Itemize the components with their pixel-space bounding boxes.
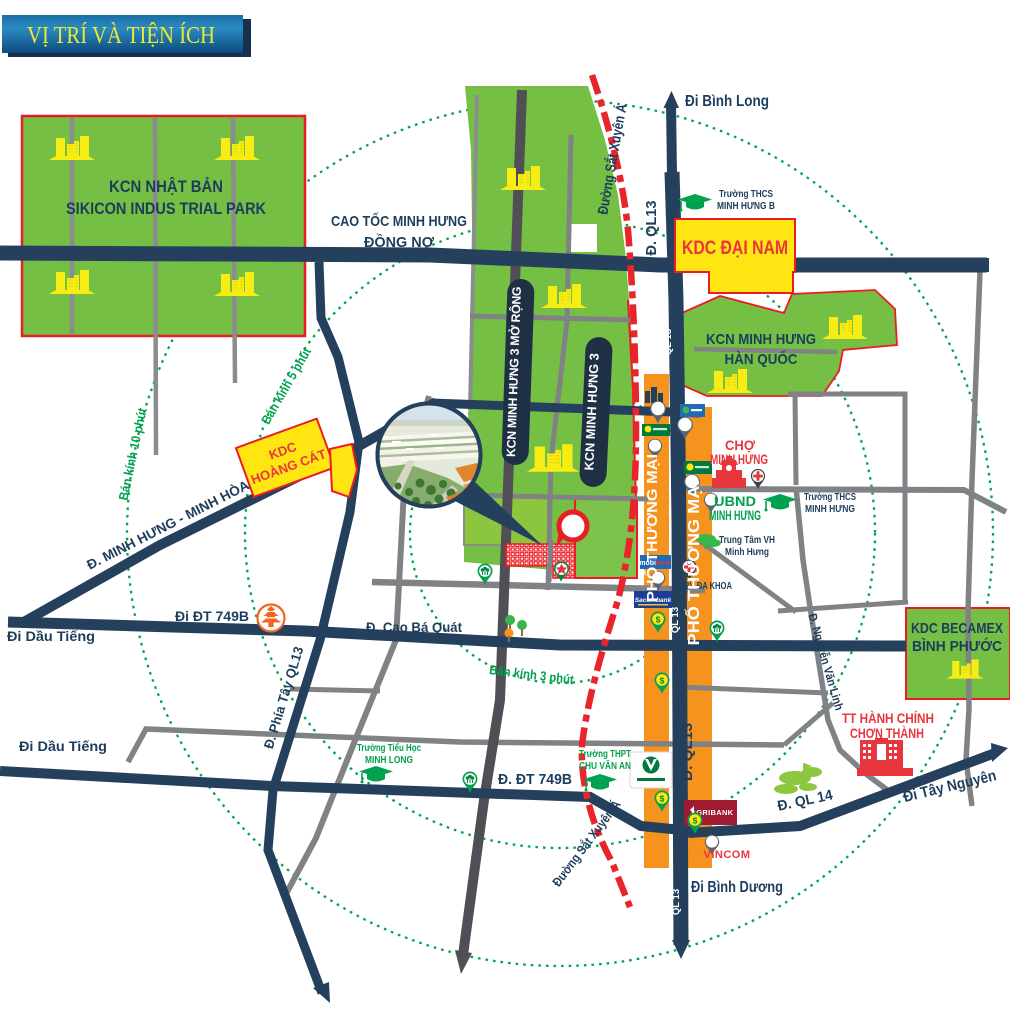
- svg-text:Trường Tiểu Học: Trường Tiểu Học: [357, 743, 421, 754]
- svg-text:QL 13: QL 13: [670, 607, 681, 633]
- svg-text:Đi Dầu Tiếng: Đi Dầu Tiếng: [7, 628, 95, 644]
- svg-text:Đ. ĐT 749B: Đ. ĐT 749B: [498, 772, 572, 788]
- svg-text:VỊ TRÍ VÀ TIỆN ÍCH: VỊ TRÍ VÀ TIỆN ÍCH: [27, 23, 215, 49]
- svg-text:Trường THCS: Trường THCS: [719, 189, 773, 200]
- svg-text:Minh Hưng: Minh Hưng: [725, 547, 769, 558]
- svg-text:MINH HƯNG: MINH HƯNG: [805, 504, 855, 515]
- svg-text:Đ. QL13: Đ. QL13: [679, 723, 696, 781]
- svg-text:Trường THPT: Trường THPT: [579, 749, 631, 760]
- svg-text:PHỐ THƯƠNG MẠI: PHỐ THƯƠNG MẠI: [685, 481, 703, 646]
- svg-text:Đ. Cao Bá Quát: Đ. Cao Bá Quát: [366, 619, 462, 635]
- svg-text:Trường THCS: Trường THCS: [804, 492, 856, 503]
- svg-text:MINH LONG: MINH LONG: [365, 755, 413, 766]
- svg-text:TT HÀNH CHÍNH: TT HÀNH CHÍNH: [842, 711, 934, 726]
- svg-text:CHỢ: CHỢ: [725, 438, 755, 453]
- svg-text:BÌNH PHƯỚC: BÌNH PHƯỚC: [912, 637, 1002, 655]
- svg-text:Đ. QL13: Đ. QL13: [643, 201, 660, 256]
- svg-text:CAO TỐC MINH HƯNG: CAO TỐC MINH HƯNG: [331, 212, 467, 230]
- svg-text:SIKICON INDUS TRIAL PARK: SIKICON INDUS TRIAL PARK: [66, 199, 267, 218]
- svg-text:PHỐ THƯƠNG MẠI: PHỐ THƯƠNG MẠI: [643, 454, 661, 602]
- svg-text:KCN NHẬT BẢN: KCN NHẬT BẢN: [109, 177, 223, 196]
- svg-text:QL 13: QL 13: [671, 889, 682, 915]
- svg-text:KDC BECAMEX: KDC BECAMEX: [911, 620, 1003, 637]
- svg-text:Đi ĐT 749B: Đi ĐT 749B: [175, 608, 249, 624]
- svg-text:ĐỒNG NƠ: ĐỒNG NƠ: [364, 233, 434, 251]
- svg-text:MINH HƯNG: MINH HƯNG: [710, 452, 768, 467]
- svg-text:Đi Bình Dương: Đi Bình Dương: [691, 879, 783, 896]
- svg-text:CHU VĂN AN: CHU VĂN AN: [579, 761, 631, 772]
- svg-text:KCN MINH HƯNG: KCN MINH HƯNG: [706, 331, 816, 348]
- svg-text:Đi Bình Long: Đi Bình Long: [685, 93, 769, 110]
- svg-text:Trung Tâm VH: Trung Tâm VH: [719, 535, 775, 546]
- svg-text:VINCOM: VINCOM: [704, 849, 751, 861]
- svg-text:CHƠN THÀNH: CHƠN THÀNH: [850, 726, 924, 741]
- svg-text:MINH HƯNG: MINH HƯNG: [709, 508, 761, 523]
- svg-text:UBND: UBND: [714, 494, 756, 509]
- svg-text:Đi Dầu Tiếng: Đi Dầu Tiếng: [19, 738, 107, 754]
- svg-text:QL 13: QL 13: [663, 329, 674, 355]
- svg-text:KDC ĐẠI NAM: KDC ĐẠI NAM: [682, 238, 788, 259]
- svg-text:MINH HƯNG B: MINH HƯNG B: [717, 201, 775, 212]
- svg-text:HÀN QUỐC: HÀN QUỐC: [725, 350, 798, 368]
